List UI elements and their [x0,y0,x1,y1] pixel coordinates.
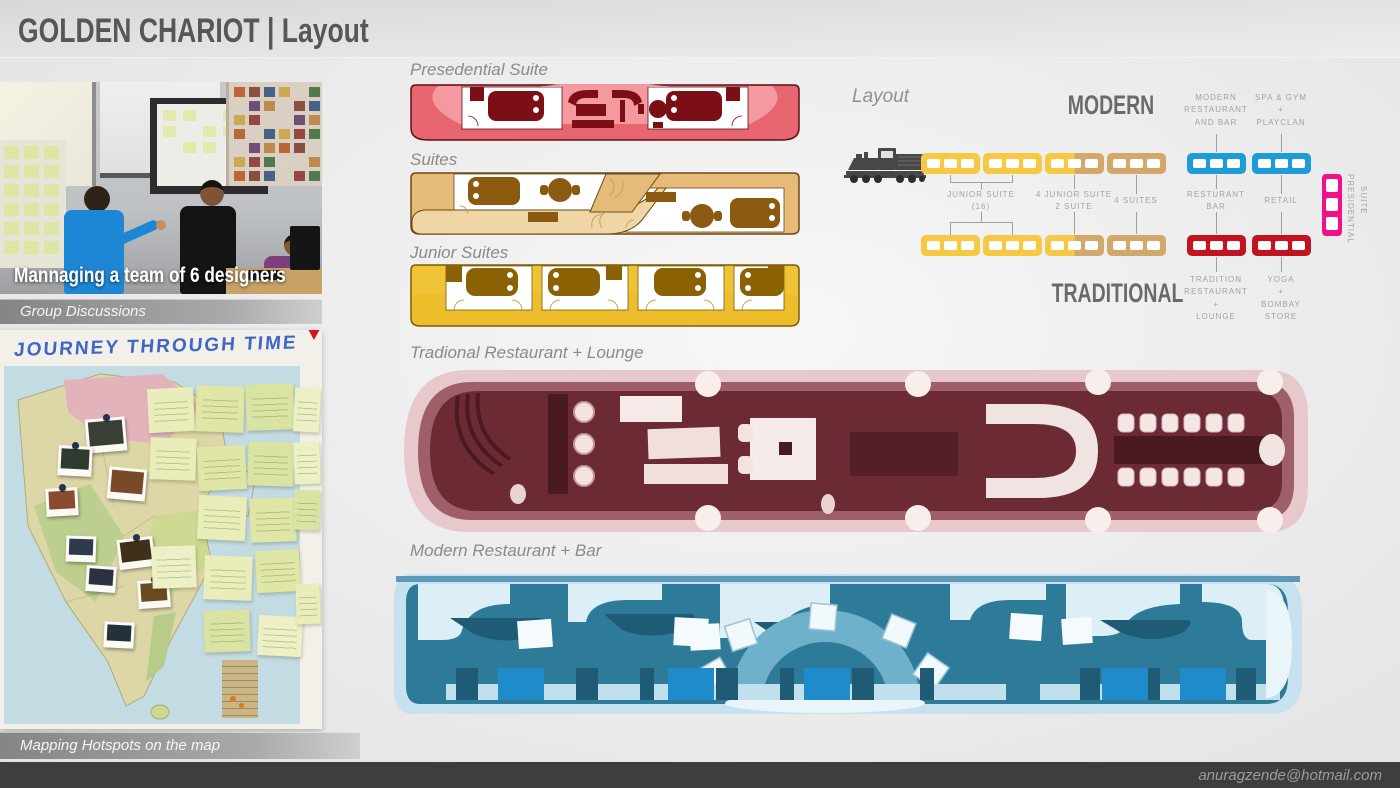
person-head [84,186,110,212]
red-pin-icon [308,330,320,340]
train-car-suite [1107,235,1166,256]
map-pin-icon [72,442,79,449]
pinned-photo [107,466,148,501]
monitor [290,226,320,270]
sticky-note [203,609,250,653]
sticky-note [197,495,247,541]
train-car-junior [983,235,1042,256]
map-handwritten-title: JOURNEY THROUGH TIME [13,332,315,362]
author-email: anuragzende@hotmail.com [1198,767,1382,784]
render-traditional-restaurant [398,366,1310,536]
plan-label-suites: Suites [410,150,457,170]
plan-label-junior-suites: Junior Suites [410,243,508,263]
team-photo: Mannaging a team of 6 designers [0,82,322,294]
sticky-board [0,140,66,268]
sticky-note [195,385,245,433]
train-car-split [1045,153,1104,174]
sticky-note [197,445,247,491]
pinned-photo [66,535,97,562]
render-modern-restaurant [390,570,1306,718]
photo-overlay-text: Mannaging a team of 6 designers [14,264,286,288]
train-car-junior [921,153,980,174]
sticky-note [295,584,320,625]
locomotive-icon [844,142,926,184]
plan-label-traditional-restaurant: Tradional Restaurant + Lounge [410,343,644,363]
orange-dot [239,703,244,708]
map-pin-icon [103,414,110,421]
map-legend [222,660,258,718]
train-car-junior [983,153,1042,174]
plan-label-presidential: Presedential Suite [410,60,548,80]
sticky-note [245,383,295,431]
sticky-note [247,441,295,487]
diagram-label-yoga-bombay: YOGA + BOMBAY STORE [1233,274,1329,324]
sticky-note [293,442,320,485]
plan-suites [410,172,800,236]
diagram-label-junior-suite: JUNIOR SUITE (16) [933,189,1029,214]
footer-bar: anuragzende@hotmail.com [0,762,1400,788]
train-car-traditional [1252,235,1311,256]
sticky-note [203,555,253,601]
presidential-suite-vertical-label: SUITE [1359,186,1368,215]
pinned-photo [45,487,78,517]
pinned-photo [116,536,155,570]
plan-presidential-suite [410,84,800,144]
map-pin-icon [133,534,140,541]
train-car-traditional [1187,235,1246,256]
layout-diagram: Layout MODERN TRADITIONAL [836,86,1400,338]
sticky-note [293,387,321,432]
train-car-suite [1107,153,1166,174]
hand [156,220,166,230]
diagram-title: Layout [852,86,909,108]
sticky-note [151,545,196,589]
collage-board [226,82,322,186]
person-head [200,180,224,206]
orange-dot [230,696,236,702]
slide-page: GOLDEN CHARIOT | Layout Mannaging a team… [0,0,1400,788]
sticky-note [147,387,195,433]
map-pin-icon [59,484,66,491]
plan-junior-suites [410,264,800,328]
page-title: GOLDEN CHARIOT | Layout [18,12,369,51]
sticky-note [293,490,320,531]
pinned-photo [57,445,93,477]
caption-mapping-hotspots: Mapping Hotspots on the map [0,732,360,759]
pinned-photo [103,621,134,649]
caption-group-discussions: Group Discussions [0,299,322,324]
pinned-photo [85,565,117,593]
presidential-suite-vertical-label: PRESIDENTIAL [1346,174,1355,244]
train-car-junior [921,235,980,256]
train-car-split [1045,235,1104,256]
train-car-modern [1252,153,1311,174]
diagram-label-retail: RETAIL [1233,195,1329,207]
plan-label-modern-restaurant: Modern Restaurant + Bar [410,541,601,561]
diagram-label-spa-gym: SPA & GYM + PLAYCLAN [1233,92,1329,129]
map-photo: JOURNEY THROUGH TIME [0,330,322,729]
sticky-note [255,549,301,593]
train-car-modern [1187,153,1246,174]
sticky-note [249,497,297,543]
sticky-note [149,437,196,481]
